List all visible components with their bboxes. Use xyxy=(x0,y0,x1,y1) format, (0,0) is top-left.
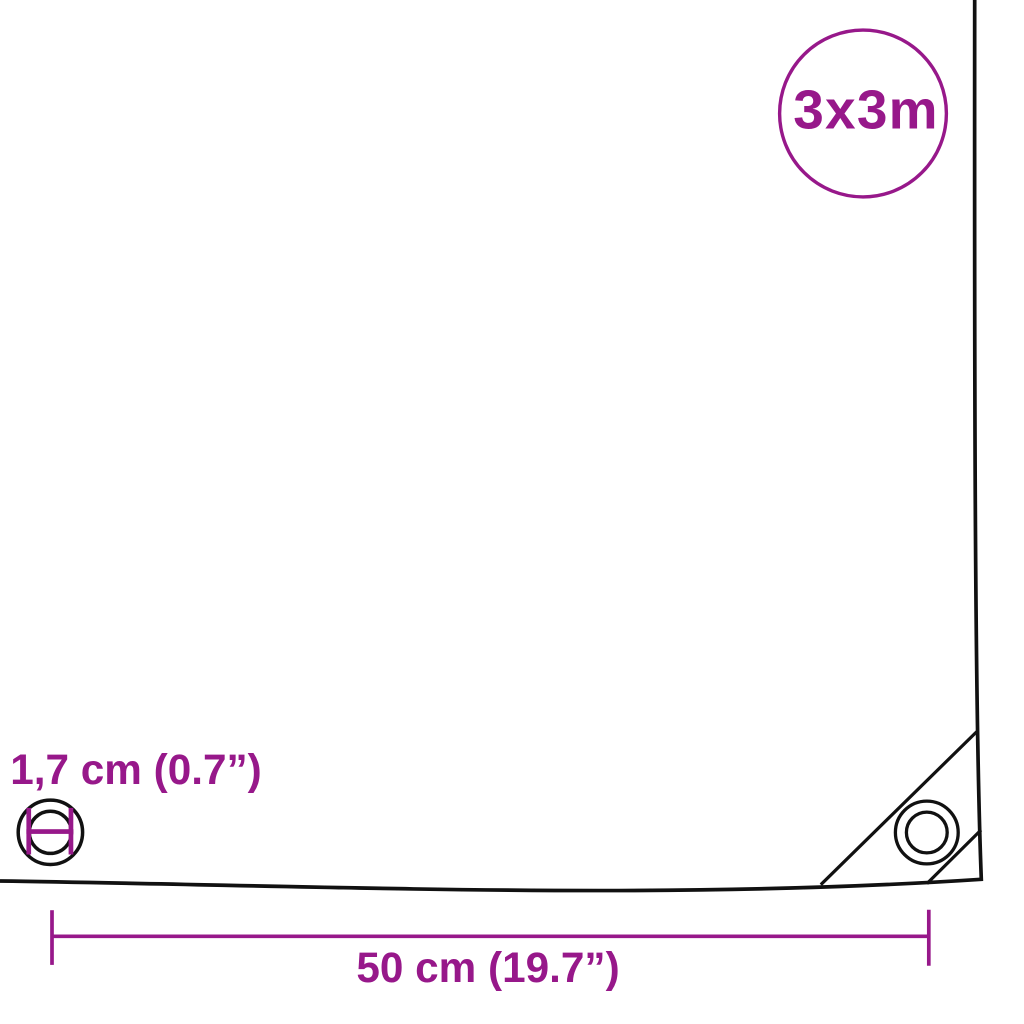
svg-text:3x3m: 3x3m xyxy=(793,79,938,141)
svg-text:1,7 cm (0.7”): 1,7 cm (0.7”) xyxy=(10,746,262,793)
svg-text:50 cm (19.7”): 50 cm (19.7”) xyxy=(356,944,619,991)
